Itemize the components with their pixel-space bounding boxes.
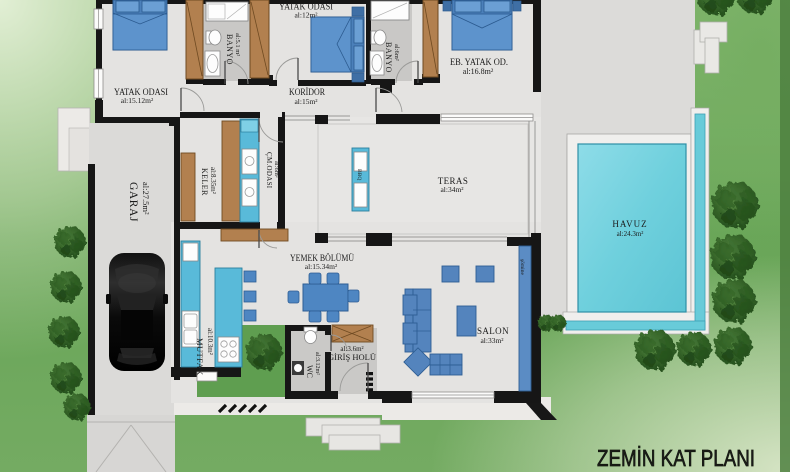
svg-text:ZEMİN KAT PLANI: ZEMİN KAT PLANI xyxy=(597,445,755,471)
svg-text:MUTFAK: MUTFAK xyxy=(195,338,205,376)
svg-text:al:33m²: al:33m² xyxy=(480,336,504,345)
svg-text:WC: WC xyxy=(305,365,314,378)
svg-text:GARAJ: GARAJ xyxy=(127,182,139,222)
svg-text:al:6m²: al:6m² xyxy=(393,44,400,61)
svg-text:al:10.3m²: al:10.3m² xyxy=(206,328,214,355)
svg-text:al:24.3m²: al:24.3m² xyxy=(617,230,644,238)
svg-text:al:16.8m²: al:16.8m² xyxy=(463,67,494,76)
svg-text:al:34m²: al:34m² xyxy=(440,185,464,194)
svg-text:ÇM.ODASI: ÇM.ODASI xyxy=(265,152,273,189)
svg-text:al:6m²: al:6m² xyxy=(273,161,280,178)
svg-text:KELER: KELER xyxy=(200,168,209,196)
svg-text:SALON: SALON xyxy=(477,326,509,336)
svg-text:al:8.35m²: al:8.35m² xyxy=(209,167,217,194)
svg-text:GİRİŞ HOLÜ: GİRİŞ HOLÜ xyxy=(328,352,376,362)
svg-text:al:15.12m²: al:15.12m² xyxy=(121,96,154,105)
svg-text:al:15m²: al:15m² xyxy=(294,97,318,106)
svg-text:al:12m²: al:12m² xyxy=(294,11,318,20)
svg-text:al:5.1 m²: al:5.1 m² xyxy=(234,33,241,56)
svg-text:BBQ: BBQ xyxy=(356,169,362,180)
svg-text:BANYO: BANYO xyxy=(384,42,393,73)
svg-text:al:15.34m²: al:15.34m² xyxy=(305,262,338,271)
svg-text:KORİDOR: KORİDOR xyxy=(289,87,325,97)
svg-text:al:3.12m²: al:3.12m² xyxy=(314,352,320,375)
svg-text:BANYO: BANYO xyxy=(225,34,234,65)
svg-text:şömine: şömine xyxy=(519,259,525,275)
svg-text:HAVUZ: HAVUZ xyxy=(612,219,647,229)
svg-text:al:27.5m²: al:27.5m² xyxy=(141,182,151,215)
